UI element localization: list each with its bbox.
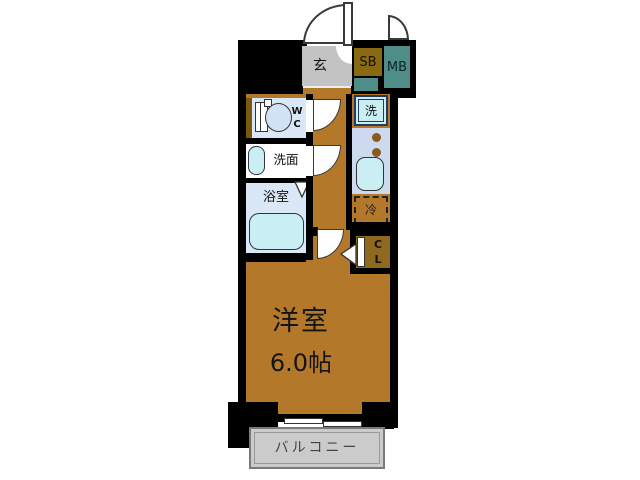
stove-burner-icon xyxy=(372,148,381,157)
washer-label: 洗 xyxy=(365,105,377,117)
balcony-label: バルコニー xyxy=(275,441,360,455)
washroom-doorway xyxy=(306,146,313,176)
stove-burner-icon xyxy=(372,133,381,142)
closet-label: C L xyxy=(368,236,388,268)
wall-bath-room xyxy=(246,253,306,262)
closet-label-c: C xyxy=(374,238,382,251)
basin-icon xyxy=(248,146,265,175)
fridge-space: 冷 xyxy=(354,196,388,224)
bathroom-label: 浴室 xyxy=(263,191,289,204)
toilet-bowl-icon xyxy=(265,103,292,132)
toilet-doorway xyxy=(306,100,313,132)
pipe-space-strip xyxy=(246,98,252,138)
meter-box-label: MB xyxy=(387,61,407,74)
wall-kitchen-bottom xyxy=(346,222,398,230)
washroom-label-box: 洗面 xyxy=(266,146,306,174)
shoe-box-label: SB xyxy=(359,56,376,69)
toilet-label: W C xyxy=(290,100,304,136)
shoe-box-sub xyxy=(354,78,378,91)
main-room-label-block: 洋室 6.0帖 xyxy=(236,299,366,378)
entrance-label: 玄 xyxy=(313,59,327,73)
balcony-label-box: バルコニー xyxy=(251,429,383,467)
washer-pan: 洗 xyxy=(354,95,388,126)
pillar-right xyxy=(362,402,394,429)
closet-door-panel-icon xyxy=(357,237,365,267)
main-room-size: 6.0帖 xyxy=(236,343,366,378)
entrance-step xyxy=(303,86,351,94)
toilet-label-w: W xyxy=(291,106,302,117)
meter-box: MB xyxy=(384,46,410,88)
washroom-label: 洗面 xyxy=(273,154,298,167)
shoe-box: SB xyxy=(354,48,382,76)
sliding-window-icon xyxy=(284,418,323,424)
meter-box-door-arc-icon xyxy=(388,15,409,40)
kitchen-sink-icon xyxy=(356,157,384,191)
closet-door-triangle-icon xyxy=(340,243,357,266)
entrance-door-leaf-icon xyxy=(343,2,353,46)
entrance-door-arc-icon xyxy=(303,4,347,44)
bathtub-icon xyxy=(249,213,304,250)
toilet-label-c: C xyxy=(293,119,300,130)
fridge-label: 冷 xyxy=(365,204,377,216)
floor-plan: 玄 SB MB W C 洗面 浴室 洗 xyxy=(0,0,640,480)
toilet-tank-line-icon xyxy=(260,103,261,131)
closet-label-l: L xyxy=(374,253,381,266)
main-room-name: 洋室 xyxy=(236,299,366,338)
balcony: バルコニー xyxy=(249,427,385,469)
